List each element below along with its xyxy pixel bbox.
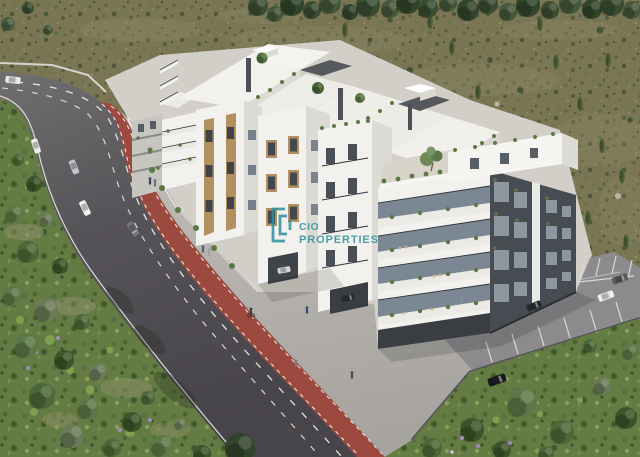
building-t1-timber-tower xyxy=(196,100,262,246)
aerial-render-canvas: CIO PROPERTIES xyxy=(0,0,640,457)
brand-name-line1: CIO xyxy=(299,221,319,233)
building-l1 xyxy=(132,114,162,198)
brand-name-line2: PROPERTIES xyxy=(299,234,379,246)
render-image: CIO PROPERTIES xyxy=(0,0,640,457)
building-l2 xyxy=(162,112,196,190)
